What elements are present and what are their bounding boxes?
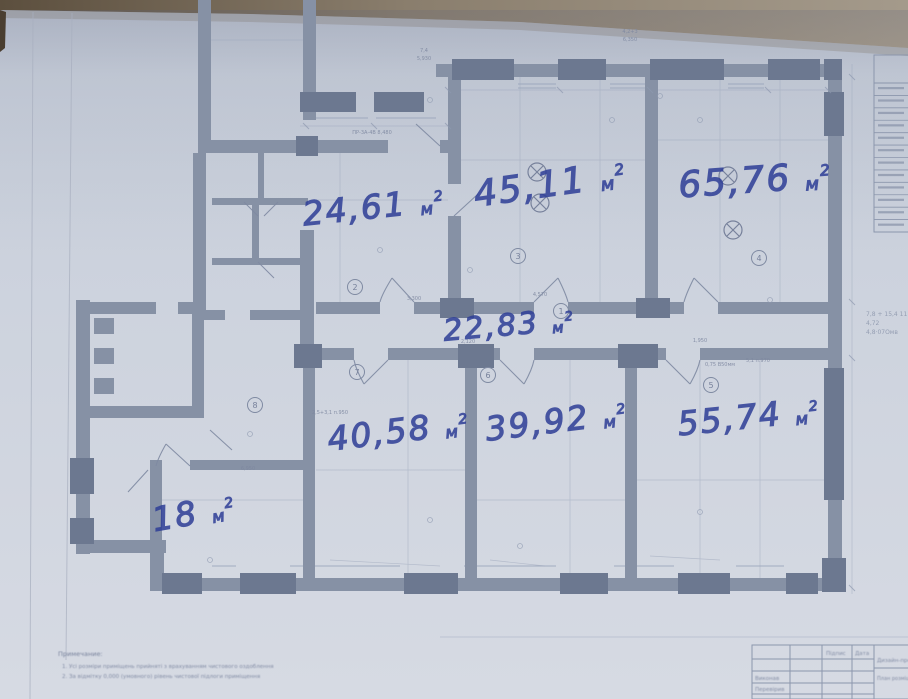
titleblock-project: Дизайн-проект bbox=[877, 657, 908, 664]
legend-row-text bbox=[878, 124, 904, 126]
dimension-label: 5,1 п.970 bbox=[746, 358, 770, 364]
dimension-label: 6,350 bbox=[623, 37, 637, 43]
floor-plan-svg: 12345678 4,2+36,3507,45,930ПР-3А-4В 8,48… bbox=[0, 0, 908, 699]
margin-note-line: 4,8·07Омв bbox=[866, 329, 898, 336]
legend-row-text bbox=[878, 211, 904, 213]
room-marker-number: 7 bbox=[354, 368, 359, 377]
legend-row-text bbox=[878, 87, 904, 89]
dimension-label: 7,4 bbox=[420, 48, 428, 54]
titleblock-author-row: Виконав bbox=[755, 676, 779, 682]
note-line: 1. Усі розміри приміщень прийняті з врах… bbox=[62, 663, 274, 670]
legend-row-text bbox=[878, 174, 904, 176]
legend-row-text bbox=[878, 162, 904, 164]
dimension-label: ПР-3А-4В 8,480 bbox=[352, 130, 392, 136]
dimension-label: 0,75 В50мм bbox=[705, 362, 735, 368]
titleblock-signature-col: Підпис bbox=[826, 651, 846, 657]
legend-row-text bbox=[878, 199, 904, 201]
legend-row-text bbox=[878, 112, 904, 114]
titleblock-checker-row: Перевірив bbox=[755, 687, 784, 693]
margin-note-line: 7,8 + 15,4 11 bbox=[866, 311, 907, 318]
room-marker-number: 5 bbox=[708, 381, 713, 390]
titleblock-sheet: План розміщення прим. bbox=[877, 676, 908, 682]
legend-row-text bbox=[878, 149, 904, 151]
legend-row-text bbox=[878, 137, 904, 139]
legend-row-text bbox=[878, 224, 904, 226]
dimension-label: 4,570 bbox=[533, 292, 547, 298]
note-line: 2. За відмітку 0,000 (умовного) рівень ч… bbox=[62, 674, 260, 680]
dimension-label: 1,950 bbox=[693, 338, 707, 344]
room-marker-number: 1 bbox=[558, 307, 563, 316]
room-marker-number: 4 bbox=[756, 254, 761, 263]
dimension-label: 3,300 bbox=[407, 296, 421, 302]
room-marker-number: 2 bbox=[352, 283, 357, 292]
legend-row-text bbox=[878, 186, 904, 188]
margin-note-line: 4,72 bbox=[866, 320, 880, 327]
legend-row-text bbox=[878, 99, 904, 101]
dimension-label: 5,930 bbox=[417, 56, 431, 62]
photographed-blueprint: 12345678 4,2+36,3507,45,930ПР-3А-4В 8,48… bbox=[0, 0, 908, 699]
dimension-label: 2,5+3,1 п.950 bbox=[312, 410, 348, 416]
room-marker-number: 8 bbox=[252, 401, 257, 410]
room-marker-number: 6 bbox=[485, 371, 490, 380]
room-marker-number: 3 bbox=[515, 252, 520, 261]
titleblock-date-col: Дата bbox=[855, 651, 869, 657]
dimension-label: 4,2+3 bbox=[622, 29, 637, 35]
dimension-label: 6,950 bbox=[241, 466, 255, 472]
notes-title: Примечание: bbox=[58, 650, 103, 658]
